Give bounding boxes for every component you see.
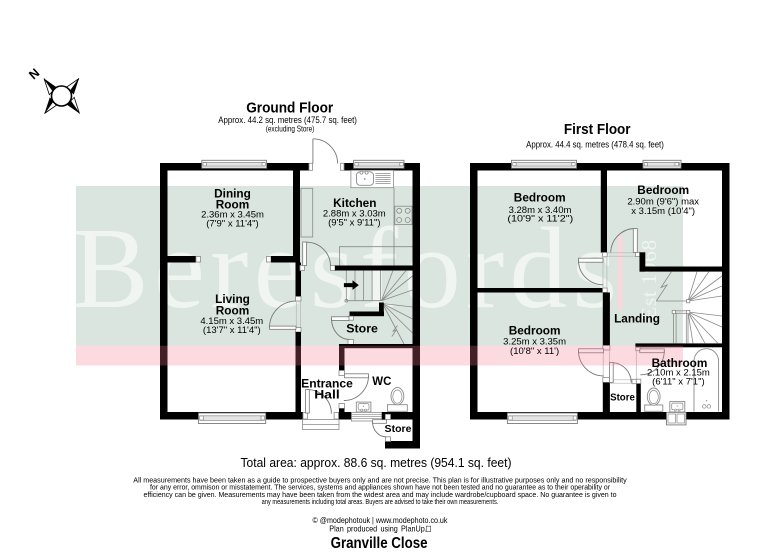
svg-text:First Floor: First Floor <box>564 121 631 138</box>
svg-text:(7'9" x 11'4"): (7'9" x 11'4") <box>206 219 258 230</box>
svg-text:Store: Store <box>385 423 412 435</box>
svg-text:(13'7" x 11'4"): (13'7" x 11'4") <box>203 325 261 336</box>
svg-text:efficiency can be given. Measu: efficiency can be given. Measurements ma… <box>144 492 617 499</box>
svg-text:Ground Floor: Ground Floor <box>246 99 333 116</box>
svg-text:Granville Close: Granville Close <box>331 535 428 552</box>
svg-text:Store: Store <box>346 322 378 336</box>
svg-text:Bedroom: Bedroom <box>637 183 689 197</box>
svg-text:All measurements have been tak: All measurements have been taken as a gu… <box>133 477 627 484</box>
svg-text:WC: WC <box>372 376 391 388</box>
svg-text:(10'9" x 11'2"): (10'9" x 11'2") <box>507 213 573 224</box>
svg-text:Store: Store <box>610 393 635 404</box>
svg-text:Landing: Landing <box>614 312 660 326</box>
svg-text:(excluding Store): (excluding Store) <box>266 125 315 134</box>
svg-text:(10'8" x 11'): (10'8" x 11') <box>510 346 559 357</box>
svg-text:Total area: approx. 88.6 sq. m: Total area: approx. 88.6 sq. metres (954… <box>241 455 512 470</box>
svg-text:x 3.15m (10'4"): x 3.15m (10'4") <box>631 206 695 217</box>
svg-text:Plan produced using PlanUp.: Plan produced using PlanUp. <box>329 524 427 534</box>
svg-text:Bedroom: Bedroom <box>514 191 566 205</box>
svg-text:for any error, ommison or miss: for any error, ommison or misstatement. … <box>150 485 611 492</box>
svg-text:Est 1968: Est 1968 <box>637 239 661 320</box>
svg-text:Hall: Hall <box>314 388 339 402</box>
svg-text:any measurements including tot: any measurements including total areas. … <box>262 499 499 506</box>
svg-text:Approx. 44.4 sq. metres (478.4: Approx. 44.4 sq. metres (478.4 sq. feet) <box>526 140 664 151</box>
svg-text:(9'5" x 9'11"): (9'5" x 9'11") <box>328 217 380 228</box>
svg-text:Bedroom: Bedroom <box>509 323 561 337</box>
svg-text:(6'11" x 7'1"): (6'11" x 7'1") <box>652 377 704 388</box>
